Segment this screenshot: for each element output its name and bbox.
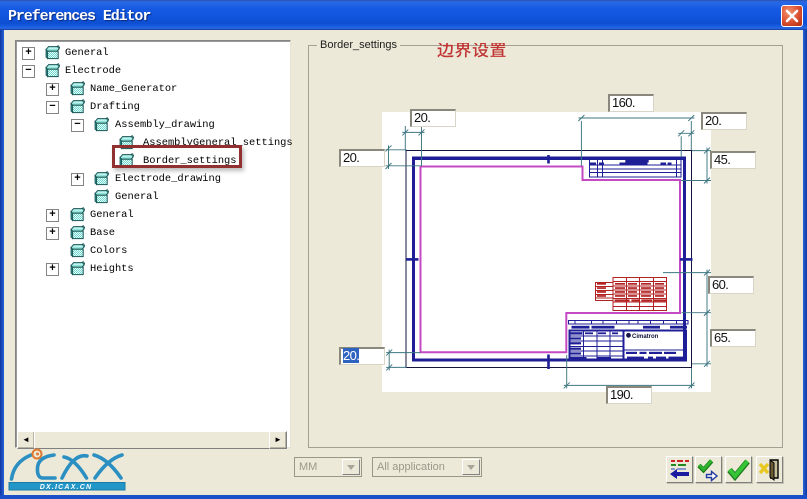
svg-text:DX.ICAX.CN: DX.ICAX.CN bbox=[40, 484, 92, 491]
svg-text:Cimatron: Cimatron bbox=[632, 334, 659, 340]
